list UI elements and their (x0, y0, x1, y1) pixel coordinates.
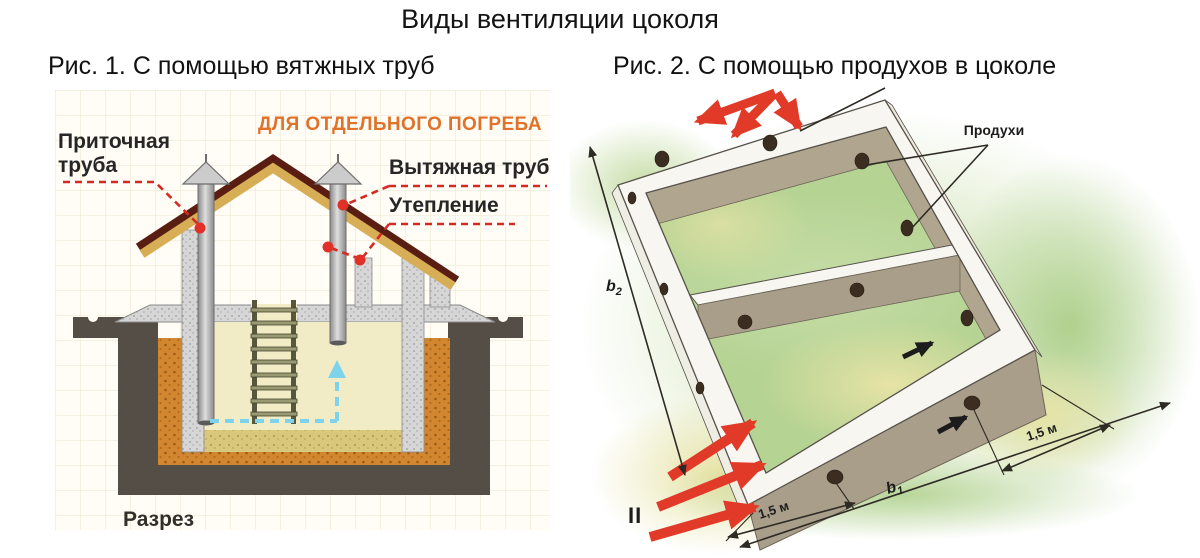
label-vents: Продухи (964, 122, 1024, 138)
cellar-interior (204, 322, 402, 430)
fig1-caption: Рис. 1. С помощью вятжных труб (48, 52, 435, 81)
hatch-opening (251, 304, 297, 322)
sand-floor (204, 430, 402, 452)
label-supply-pipe-line2: труба (58, 154, 117, 177)
ground-break-notch (498, 312, 508, 322)
fig1-diagram: Приточная труба Вытяжная труба Утепление… (55, 90, 550, 530)
label-insulation: Утепление (389, 194, 499, 217)
label-inflow: II (628, 503, 642, 528)
label-section: Разрез (123, 508, 194, 530)
label-supply-pipe-line1: Приточная (58, 130, 170, 153)
screenshot: Виды вентиляции цоколя Рис. 1. С помощью… (0, 0, 1200, 558)
ground-break-notch (88, 312, 98, 322)
ground-slab (115, 305, 495, 322)
page-title: Виды вентиляции цоколя (0, 4, 1120, 35)
label-for-separate-cellar: ДЛЯ ОТДЕЛЬНОГО ПОГРЕБА (258, 114, 542, 135)
fig2-diagram: Продухи b2 b1 1,5 м 1,5 м II (570, 85, 1200, 558)
fig2-caption: Рис. 2. С помощью продухов в цоколе (613, 52, 1056, 81)
label-exhaust-pipe: Вытяжная труба (389, 156, 550, 179)
